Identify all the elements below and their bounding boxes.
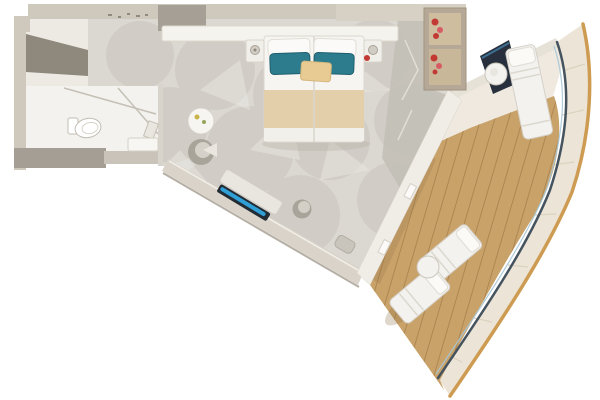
side-table-decor-2 xyxy=(202,120,206,124)
closet-shelf-bottom xyxy=(429,49,461,85)
round-side-table xyxy=(188,108,214,134)
open-closet xyxy=(424,8,466,90)
bed-cushion-beige xyxy=(300,61,331,82)
balcony-table-top-detail xyxy=(490,68,498,76)
closet-shelf-top xyxy=(429,13,461,45)
desk-chair-seat xyxy=(298,201,310,213)
flowers-red-nightstand xyxy=(364,55,370,61)
balcony-round-table-lower xyxy=(417,256,439,278)
bathroom-bottom-wall-light xyxy=(104,151,160,164)
floor-plan-canvas xyxy=(0,0,600,400)
bathroom-right-wall xyxy=(158,84,163,166)
left-wall-corner xyxy=(14,16,30,32)
side-table-decor-1 xyxy=(195,115,200,120)
lamp-left-center xyxy=(254,49,257,52)
bathroom-bottom-wall xyxy=(14,148,106,168)
lamp-right xyxy=(369,46,378,55)
stateroom-floor-plan xyxy=(0,0,600,400)
vanity xyxy=(128,138,158,151)
